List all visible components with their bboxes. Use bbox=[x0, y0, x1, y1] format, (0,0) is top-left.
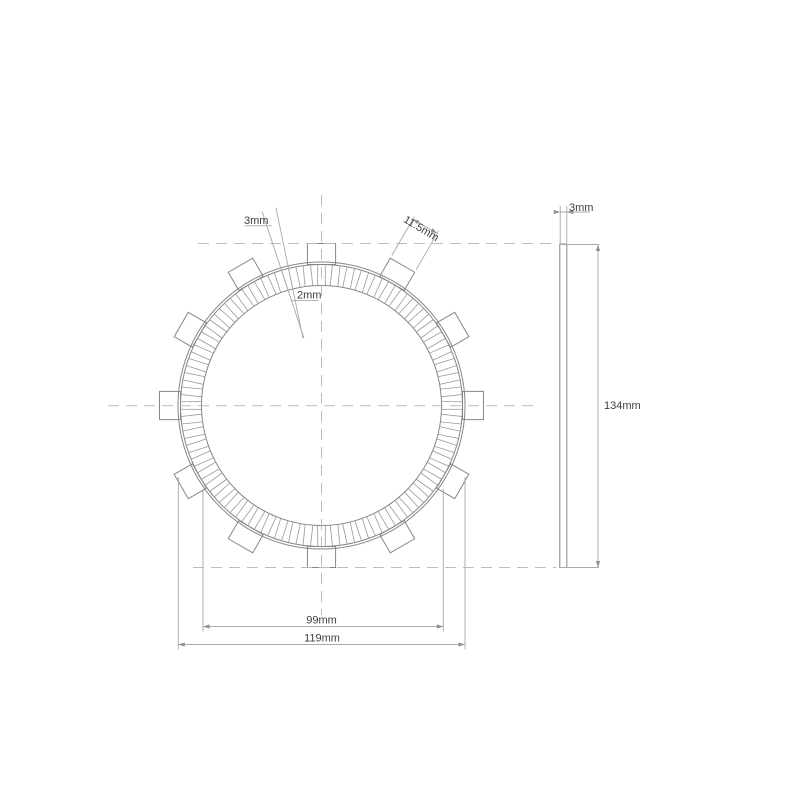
drawing-canvas: 3mm 2mm 11.5mm 3mm 134mm 99mm 119mm bbox=[0, 0, 800, 800]
dim-outer-diameter-label: 119mm bbox=[304, 633, 340, 645]
dim-inner-diameter-label: 99mm bbox=[306, 615, 337, 627]
dim-overall-diameter-label: 134mm bbox=[604, 400, 641, 412]
dim-groove-inner-label: 2mm bbox=[297, 290, 321, 302]
side-view bbox=[560, 244, 567, 568]
dim-thickness-label: 3mm bbox=[569, 202, 593, 214]
dimension-lines bbox=[178, 206, 599, 650]
dim-groove-outer-label: 3mm bbox=[244, 215, 268, 227]
dimension-arrows bbox=[178, 210, 600, 647]
technical-drawing: 3mm 2mm 11.5mm 3mm 134mm 99mm 119mm bbox=[0, 0, 800, 800]
centerlines bbox=[108, 195, 556, 615]
